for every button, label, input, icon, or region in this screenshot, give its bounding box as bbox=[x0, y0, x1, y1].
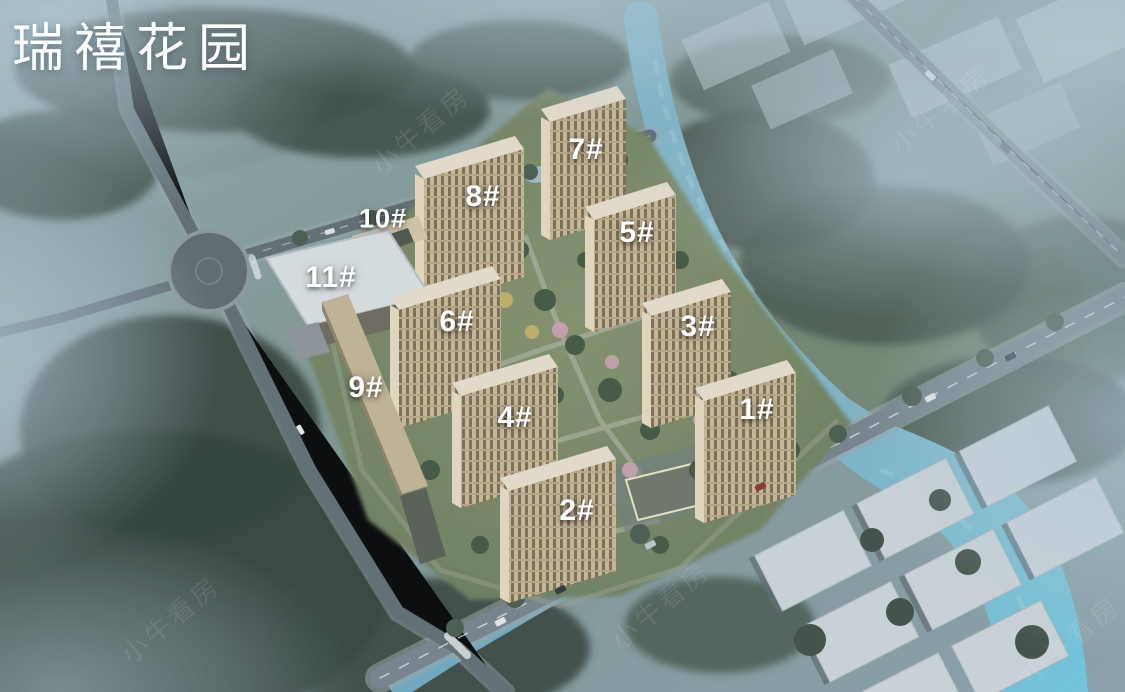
building-label-7: 7# bbox=[568, 133, 603, 167]
building-label-4: 4# bbox=[497, 401, 532, 435]
building-label-11: 11# bbox=[305, 261, 356, 295]
building-label-2: 2# bbox=[559, 494, 594, 528]
aerial-rendering: 小牛看房 小牛看房 小牛看房 小牛看房 小牛看房 瑞禧花园 1# 2# 3# 4… bbox=[0, 0, 1125, 692]
building-label-6: 6# bbox=[439, 305, 474, 339]
building-label-3: 3# bbox=[680, 310, 715, 344]
building-label-5: 5# bbox=[619, 216, 654, 250]
fog-layer bbox=[0, 0, 1125, 692]
building-label-1: 1# bbox=[739, 393, 774, 427]
project-title: 瑞禧花园 bbox=[12, 6, 260, 81]
building-label-10: 10# bbox=[359, 204, 407, 235]
scene-svg bbox=[0, 0, 1125, 692]
building-label-9: 9# bbox=[348, 371, 383, 405]
building-label-8: 8# bbox=[465, 180, 500, 214]
